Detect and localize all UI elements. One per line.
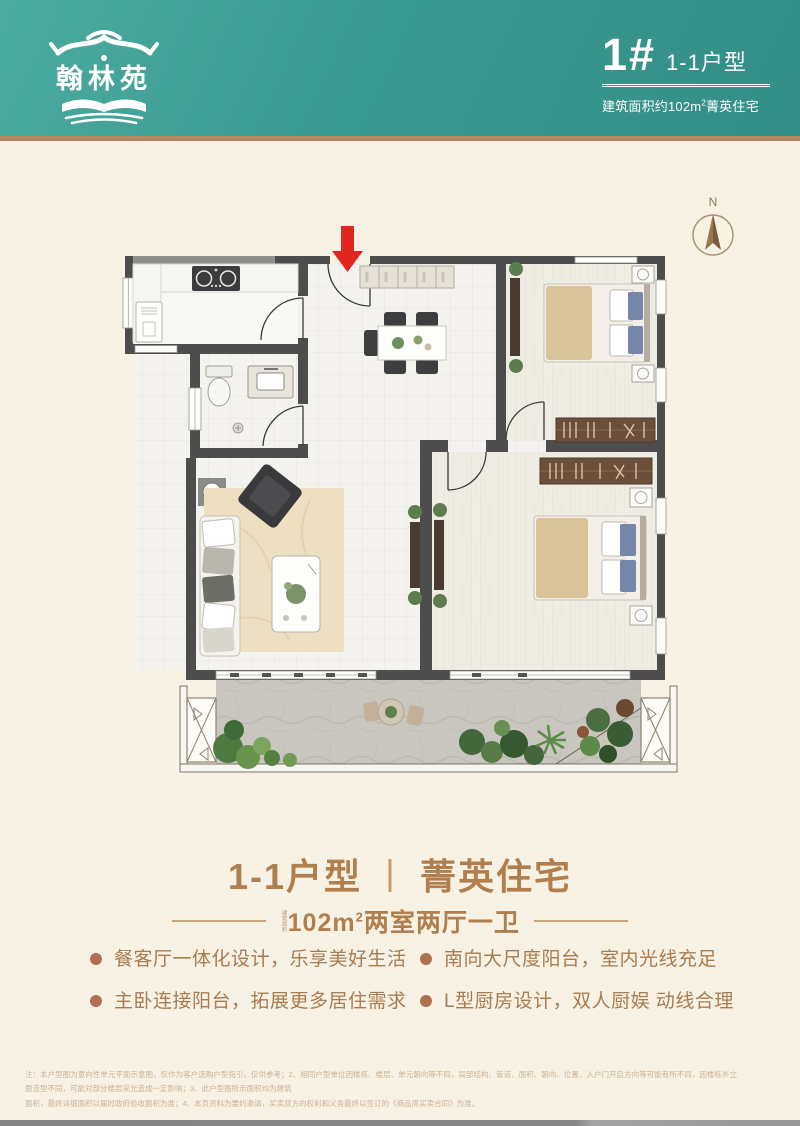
bullet-dot-icon	[90, 953, 102, 965]
floor-plan	[120, 220, 684, 780]
master-tv-console-icon	[434, 520, 444, 590]
unit-number: 1#	[602, 32, 656, 77]
dining-table-icon	[378, 326, 446, 360]
spec-sup: 2	[356, 910, 364, 925]
feature-list: 餐客厅一体化设计，乐享美好生活 南向大尺度阳台，室内光线充足 主卧连接阳台，拓展…	[90, 948, 750, 1014]
unit-title-row: 1# 1-1户型	[602, 32, 770, 87]
bullet-dot-icon	[90, 995, 102, 1007]
entry-cabinet	[360, 266, 454, 288]
sofa-icon	[200, 516, 240, 656]
feature-item: 南向大尺度阳台，室内光线充足	[420, 948, 750, 972]
compass-needle-icon	[705, 214, 721, 250]
header-band: 翰林苑 1# 1-1户型 建筑面积约102m2菁英住宅	[0, 0, 800, 141]
area-prefix: 建筑面积约102m	[602, 99, 701, 114]
header-unit-block: 1# 1-1户型 建筑面积约102m2菁英住宅	[602, 32, 770, 115]
header-area-subtitle: 建筑面积约102m2菁英住宅	[602, 96, 770, 115]
spec-note: 建筑面积	[280, 910, 286, 932]
area-suffix: 菁英住宅	[706, 99, 759, 114]
disclaimer-line1: 注：本户型图为意向性单元平面示意图，仅作为客户选购户型指引，仅供参考；2、相同户…	[25, 1068, 737, 1097]
feature-text: L型厨房设计，双人厨娱 动线合理	[444, 990, 734, 1014]
spec-line-right	[534, 920, 628, 922]
plan-title-divider: 丨	[372, 856, 410, 897]
spec-area: 102m	[288, 909, 356, 937]
spec-line-left	[172, 920, 266, 922]
living-console-icon	[410, 522, 420, 588]
feature-item: 餐客厅一体化设计，乐享美好生活	[90, 948, 420, 972]
plan-title: 1-1户型丨菁英住宅	[0, 848, 800, 900]
balcony-floor	[216, 680, 641, 766]
plan-title-name: 1-1户型	[228, 856, 362, 897]
spec-rooms: 两室两厅一卫	[364, 909, 520, 937]
plan-title-tagline: 菁英住宅	[420, 856, 572, 897]
flue-left-icon	[187, 698, 216, 762]
logo-book-icon	[62, 100, 146, 124]
spec-row: 建筑面积 102m2两室两厅一卫	[0, 903, 800, 939]
disclaimer-line2: 面积，最终详细面积以届时政府验收面积为准；4、本页资料为要约邀请，买卖双方的权利…	[25, 1097, 737, 1111]
feature-text: 餐客厅一体化设计，乐享美好生活	[114, 948, 407, 972]
disclaimer: 注：本户型图为意向性单元平面示意图，仅作为客户选购户型指引，仅供参考；2、相同户…	[25, 1068, 737, 1111]
unit-type: 1-1户型	[666, 45, 747, 77]
logo-text: 翰林苑	[56, 64, 152, 95]
feature-text: 南向大尺度阳台，室内光线充足	[444, 948, 717, 972]
bottom-bar	[0, 1120, 800, 1126]
coffee-table-icon	[272, 556, 320, 632]
feature-item: L型厨房设计，双人厨娱 动线合理	[420, 990, 750, 1014]
hanlinyuan-logo: 翰林苑	[36, 22, 172, 126]
compass-north-label: N	[709, 195, 718, 209]
logo-dot	[101, 55, 107, 61]
bullet-dot-icon	[420, 995, 432, 1007]
spec-text: 102m2两室两厅一卫	[288, 903, 520, 939]
bullet-dot-icon	[420, 953, 432, 965]
feature-text: 主卧连接阳台，拓展更多居住需求	[114, 990, 407, 1014]
tv-console-icon	[510, 278, 520, 356]
toilet-icon	[206, 366, 232, 377]
flue-right-icon	[641, 698, 670, 762]
compass: N	[684, 194, 742, 260]
feature-item: 主卧连接阳台，拓展更多居住需求	[90, 990, 420, 1014]
